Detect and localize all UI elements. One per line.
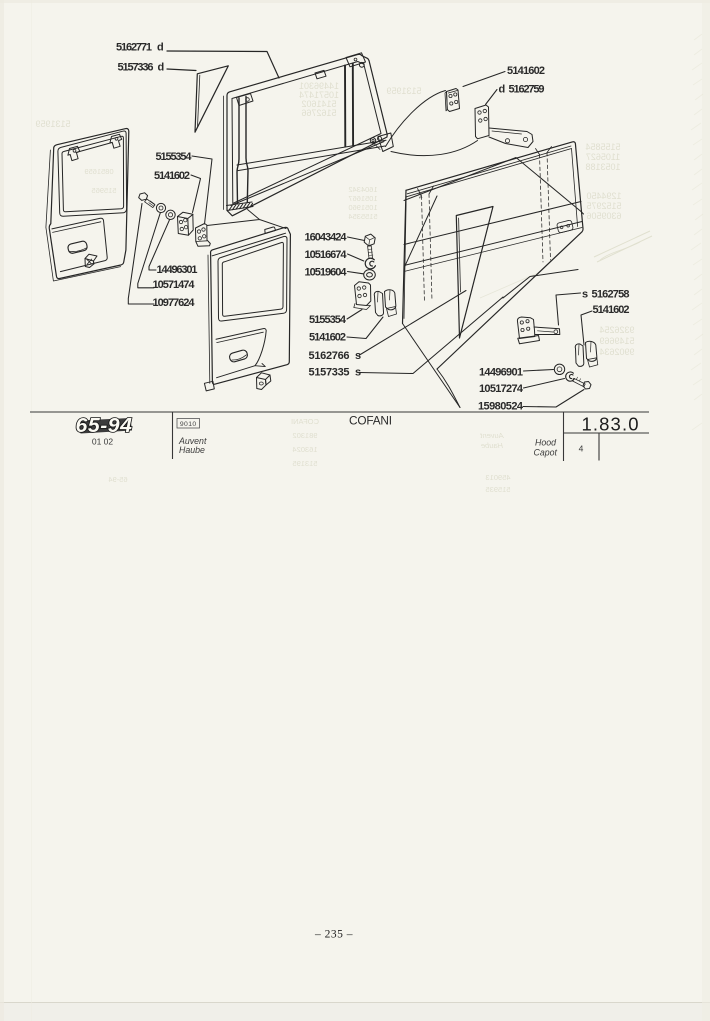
svg-text:5141602: 5141602 [309, 332, 346, 344]
svg-text:513195: 513195 [292, 459, 317, 468]
svg-text:5162766: 5162766 [309, 350, 350, 362]
svg-text:5141602: 5141602 [154, 170, 190, 182]
svg-text:1051667: 1051667 [348, 194, 377, 203]
svg-text:65-94: 65-94 [76, 415, 133, 437]
svg-text:Auvent: Auvent [479, 431, 504, 440]
svg-text:5162771: 5162771 [116, 42, 152, 54]
svg-text:5157335: 5157335 [309, 367, 350, 379]
svg-text:s: s [355, 367, 361, 379]
svg-text:9326254: 9326254 [599, 325, 634, 335]
svg-text:Haube: Haube [179, 445, 205, 455]
svg-text:16043424: 16043424 [305, 231, 348, 243]
svg-text:5157336: 5157336 [118, 62, 154, 74]
svg-text:163024: 163024 [292, 445, 317, 454]
svg-text:4: 4 [579, 444, 584, 454]
svg-text:COFANI: COFANI [291, 417, 319, 426]
svg-text:515965: 515965 [91, 186, 116, 195]
svg-text:Capot: Capot [534, 447, 558, 457]
svg-text:14496901: 14496901 [479, 367, 523, 379]
svg-text:5155354: 5155354 [156, 151, 193, 163]
svg-text:s: s [582, 288, 588, 300]
svg-text:5141602: 5141602 [507, 65, 545, 77]
svg-text:5162758: 5162758 [592, 288, 630, 300]
svg-text:10519604: 10519604 [305, 267, 348, 279]
svg-text:5162759: 5162759 [509, 84, 545, 96]
svg-text:– 235 –: – 235 – [314, 929, 353, 941]
svg-text:d: d [158, 62, 165, 74]
svg-text:d: d [157, 42, 164, 54]
svg-text:10516674: 10516674 [305, 249, 348, 261]
svg-text:9902634: 9902634 [599, 347, 634, 357]
svg-text:5155354: 5155354 [309, 314, 347, 326]
svg-text:9010: 9010 [180, 421, 197, 428]
svg-text:10517274: 10517274 [479, 383, 524, 395]
svg-text:1105627: 1105627 [586, 152, 620, 162]
svg-text:1604342: 1604342 [348, 185, 377, 194]
svg-text:5155854: 5155854 [585, 142, 620, 152]
svg-text:65-94: 65-94 [108, 475, 127, 484]
svg-text:Hood: Hood [535, 437, 557, 447]
svg-text:1294450: 1294450 [586, 191, 621, 201]
svg-text:1051960: 1051960 [348, 203, 377, 212]
svg-text:14496301: 14496301 [157, 264, 198, 276]
svg-text:5162766: 5162766 [301, 108, 336, 118]
svg-text:0851659: 0851659 [84, 167, 113, 176]
svg-text:459013: 459013 [485, 473, 510, 482]
svg-text:6309506: 6309506 [586, 211, 621, 221]
svg-text:d: d [499, 84, 506, 96]
svg-text:5149669: 5149669 [599, 336, 634, 346]
svg-text:01 02: 01 02 [92, 437, 114, 447]
svg-text:5155354: 5155354 [348, 212, 377, 221]
svg-text:981302: 981302 [292, 431, 317, 440]
svg-text:5141602: 5141602 [593, 304, 630, 316]
svg-text:1.83.0: 1.83.0 [582, 413, 639, 434]
svg-text:1053188: 1053188 [585, 162, 620, 172]
svg-text:10571474: 10571474 [153, 279, 196, 291]
svg-text:10977624: 10977624 [153, 297, 196, 309]
svg-text:Haube: Haube [481, 441, 503, 450]
svg-text:5131959: 5131959 [35, 119, 70, 129]
svg-text:15980524: 15980524 [478, 401, 524, 413]
svg-text:5131959: 5131959 [386, 86, 421, 96]
svg-text:515935: 515935 [485, 485, 510, 494]
svg-text:COFANI: COFANI [349, 413, 393, 427]
svg-text:s: s [355, 350, 361, 362]
svg-text:5152975: 5152975 [586, 201, 621, 211]
